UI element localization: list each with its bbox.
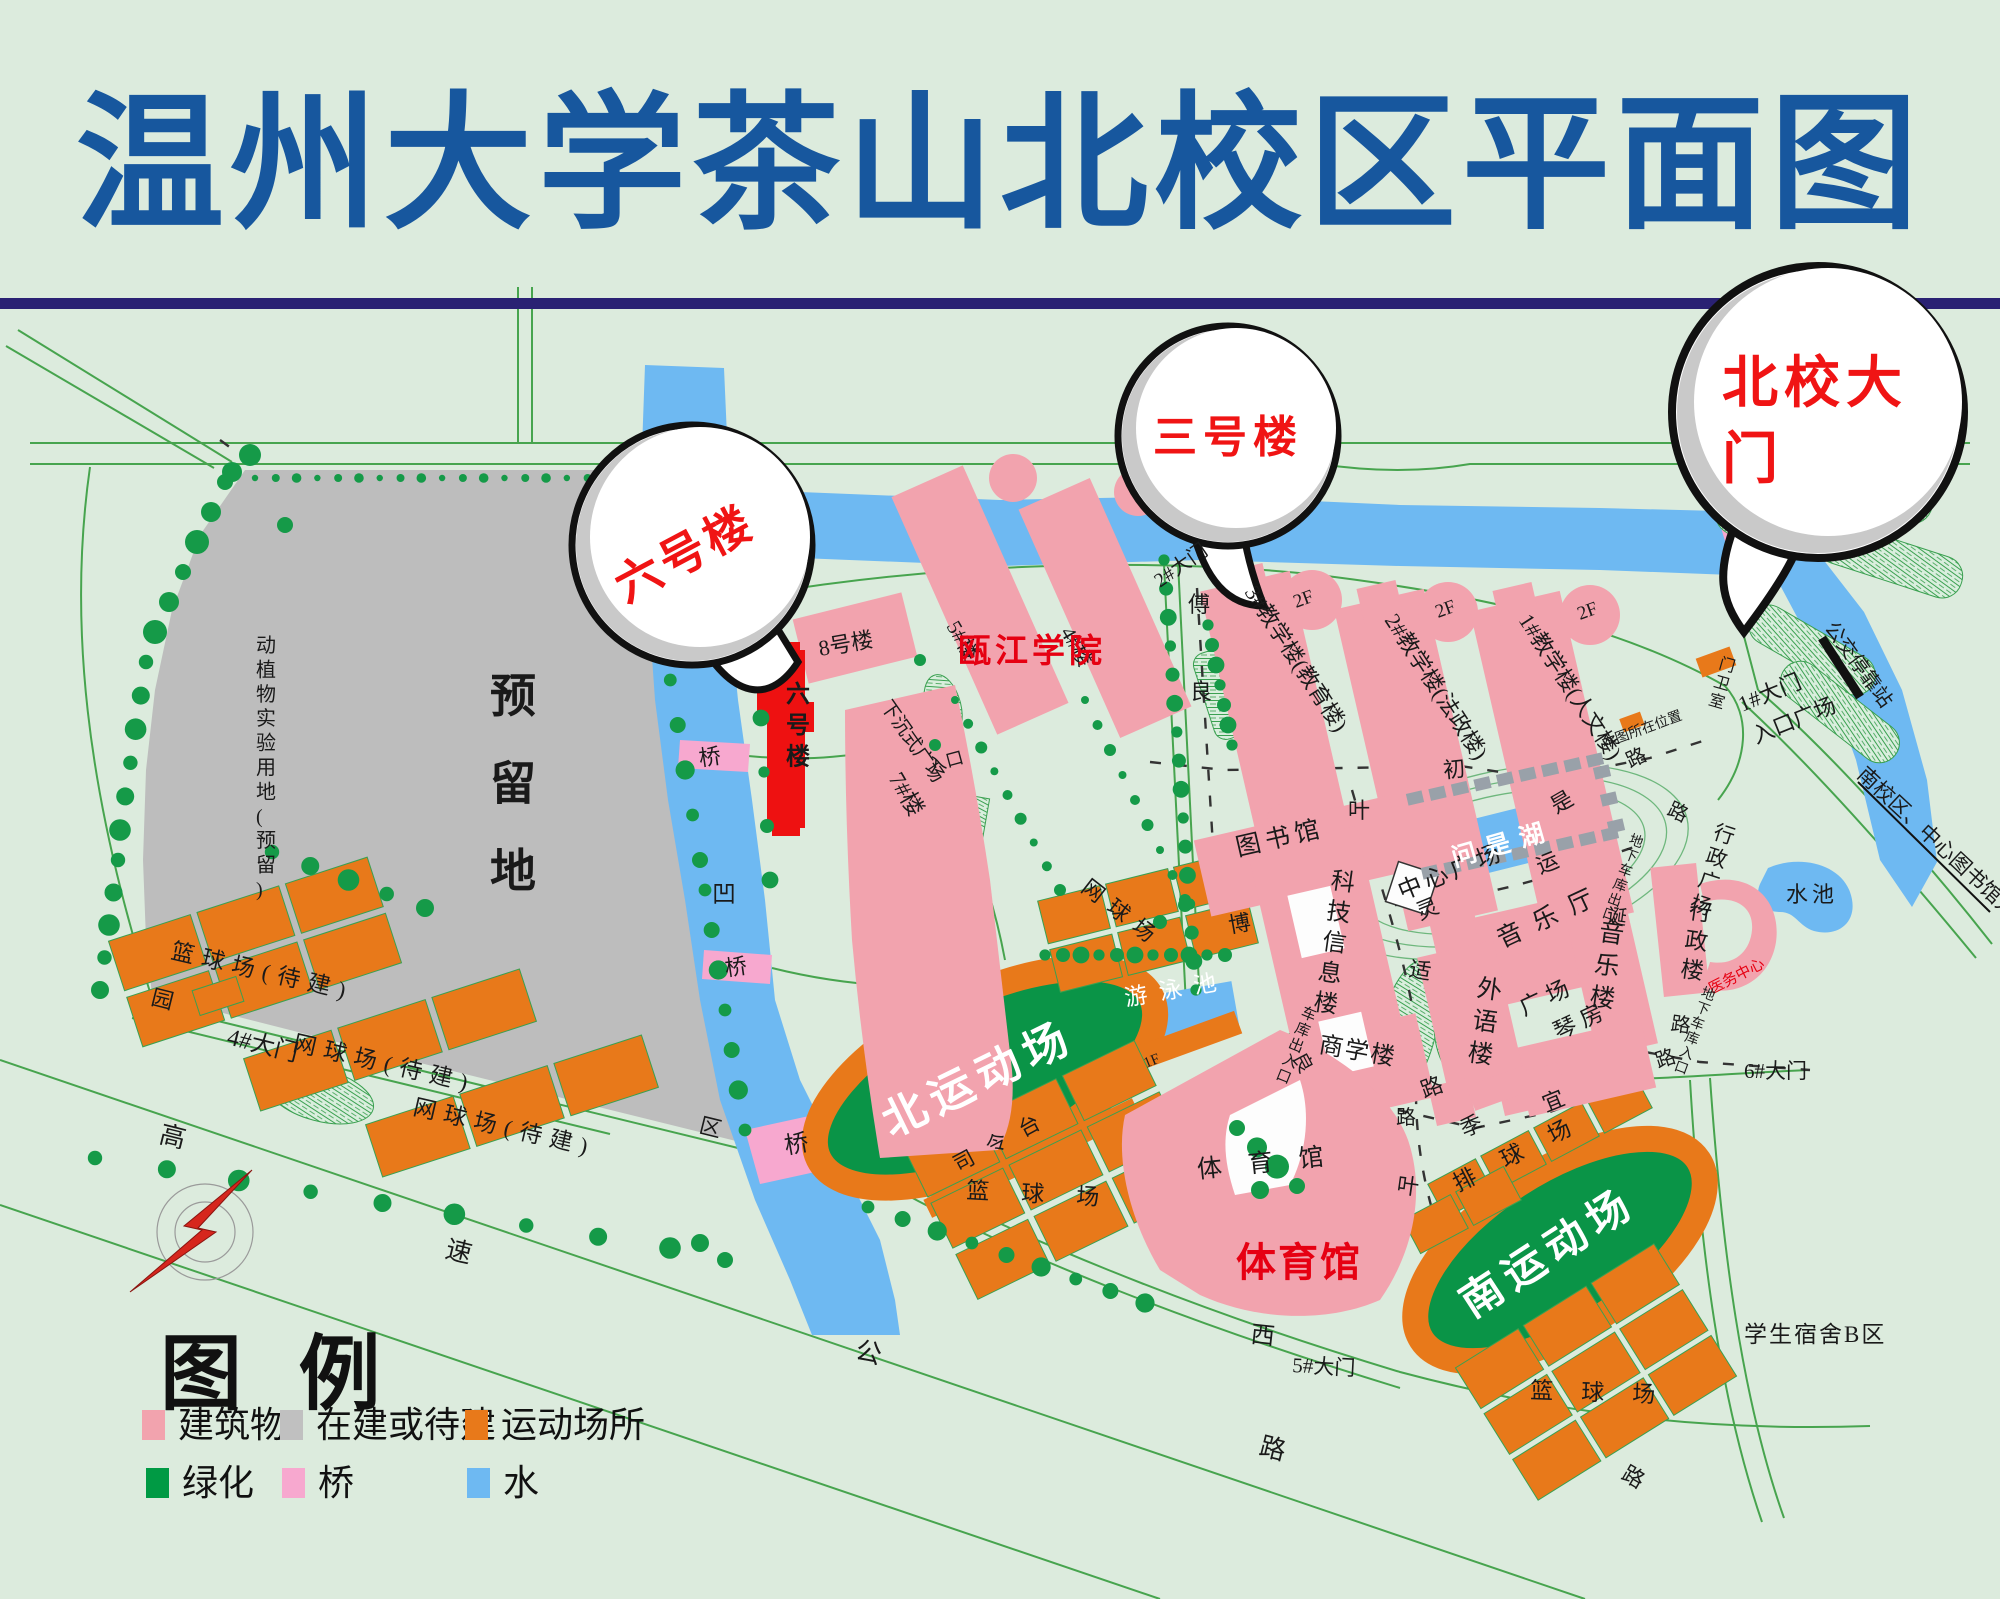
- page-title: 温州大学茶山北校区平面图: [76, 82, 1924, 247]
- legend-swatch: [280, 1410, 303, 1440]
- legend-swatch: [142, 1410, 165, 1440]
- map-label: 5#大门: [1292, 1353, 1356, 1380]
- building-5-ear: [989, 454, 1037, 502]
- campus-map-page: 图 例 建筑物在建或待建运动场所绿化桥水 温州大学茶山北校区平面图 六号楼三号楼…: [0, 0, 2000, 1599]
- legend-swatch: [146, 1468, 169, 1498]
- legend-label: 绿化: [182, 1463, 254, 1503]
- legend-label: 桥: [318, 1463, 354, 1503]
- map-label: 初: [1442, 756, 1467, 783]
- map-label: 6#大门: [1744, 1059, 1807, 1083]
- map-label: 适: [1407, 956, 1433, 984]
- map-label: 诞: [1605, 904, 1628, 930]
- map-svg: 图 例 建筑物在建或待建运动场所绿化桥水 温州大学茶山北校区平面图 六号楼三号楼…: [0, 0, 2000, 1599]
- map-label: 学生宿舍B区: [1744, 1322, 1886, 1347]
- map-label: 门: [1722, 429, 1778, 491]
- legend-swatch: [465, 1410, 488, 1440]
- title-rule: [0, 298, 2000, 309]
- map-label: 路: [1396, 1106, 1416, 1129]
- map-label: 体育馆: [1236, 1240, 1362, 1285]
- map-label: 博: [1227, 909, 1253, 937]
- map-label: 凹: [712, 882, 736, 908]
- legend-swatch: [467, 1468, 490, 1498]
- map-label: 桥: [782, 1129, 810, 1160]
- map-label: 良: [1190, 679, 1212, 704]
- map-label: 预留地: [490, 671, 536, 897]
- map-label: 桥: [697, 743, 722, 771]
- legend-label: 运动场所: [501, 1405, 645, 1445]
- map-label: 北校大: [1722, 353, 1908, 415]
- map-label: 动植物实验用地(预留): [256, 634, 276, 901]
- map-label: 瓯江学院: [958, 632, 1106, 670]
- map-label: 桥: [723, 953, 748, 981]
- map-label: 傅: [1188, 592, 1210, 617]
- map-label: 三号楼: [1153, 413, 1303, 462]
- map-label: 六号楼: [786, 681, 810, 770]
- map-label: 叶: [1395, 1172, 1420, 1200]
- legend-swatch: [282, 1468, 305, 1498]
- map-label: 西: [1249, 1322, 1276, 1350]
- map-label: 叶: [1348, 798, 1370, 823]
- legend-label: 水: [503, 1463, 539, 1503]
- map-label: 水池: [1786, 882, 1838, 907]
- legend-label: 建筑物: [178, 1405, 286, 1445]
- map-label: 篮球场: [1530, 1378, 1684, 1408]
- map-label: 路: [1669, 1012, 1692, 1038]
